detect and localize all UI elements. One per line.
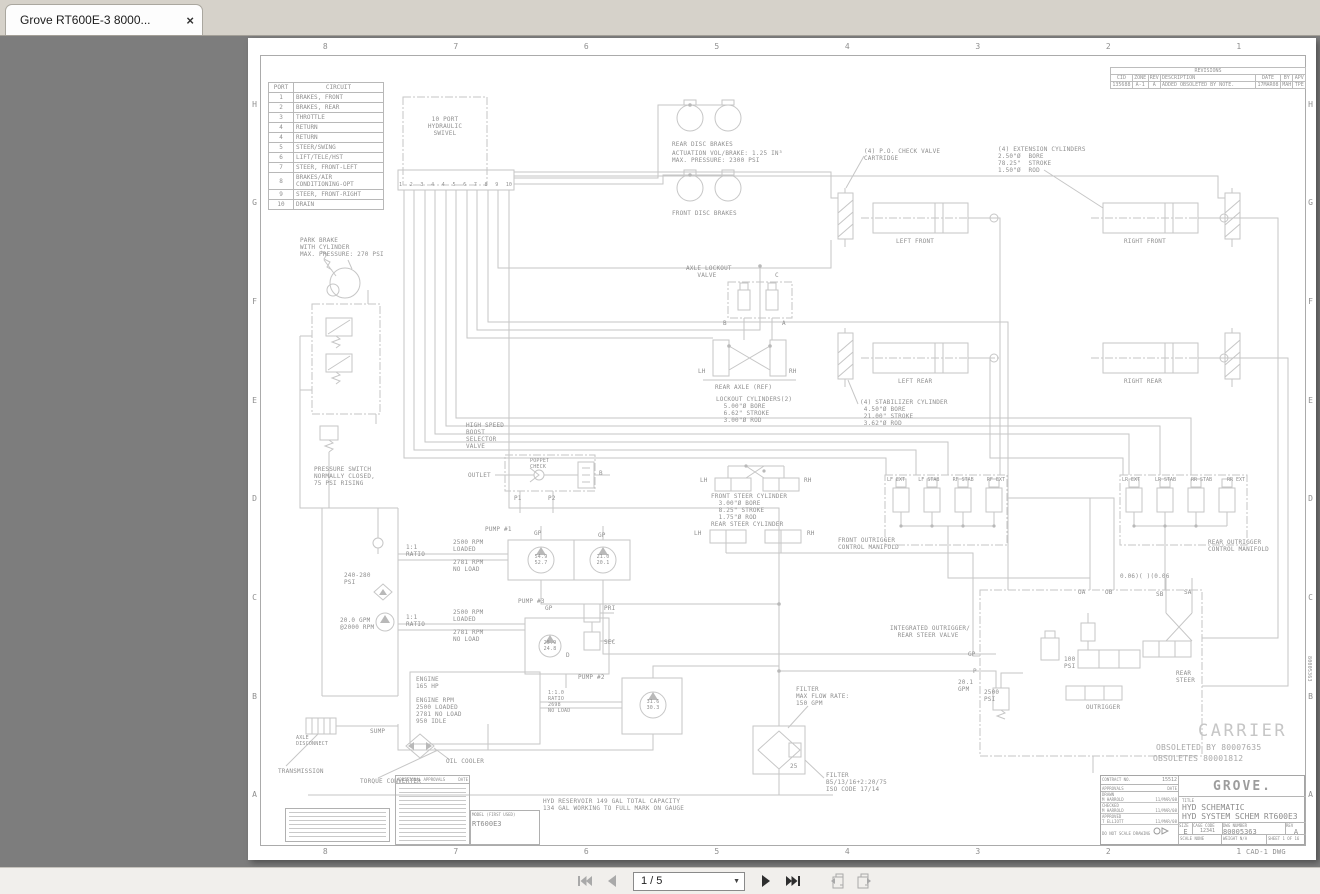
port-cell: 5: [269, 143, 294, 153]
zone-number: 1: [1236, 847, 1241, 857]
zone-letter: F: [252, 297, 257, 306]
carrier-text: CARRIER: [1198, 722, 1287, 740]
gp-label-3: GP: [545, 605, 553, 612]
circuit-cell: BRAKES/AIR CONDITIONING-OPT: [294, 173, 384, 190]
last-page-icon: [785, 874, 801, 888]
tab-title: Grove RT600E-3 8000...: [20, 13, 178, 27]
port-table-row: 7 STEER, FRONT-LEFT: [269, 163, 384, 173]
approval-row: APPROVED T ELLIOTT 11/MAR/08: [1101, 814, 1179, 825]
zone-numbers-top: 87654321: [260, 42, 1304, 52]
right-front-label: RIGHT FRONT: [1124, 238, 1166, 245]
pump1-label: PUMP #1: [485, 526, 512, 533]
valve-label: LR EXT: [1122, 477, 1140, 483]
zone-letter: G: [1308, 198, 1313, 207]
previous-view-icon: [829, 873, 845, 889]
left-front-label: LEFT FRONT: [896, 238, 934, 245]
gp-label-1: GP: [534, 530, 542, 537]
date-label: DATE: [458, 777, 468, 782]
port-table-row: 4 RETURN: [269, 133, 384, 143]
zone-numbers-bottom: 87654321: [260, 847, 1304, 857]
outlet-label: OUTLET: [468, 472, 491, 479]
port-oa-label: OA: [1078, 589, 1086, 596]
tolerance-notes-block: [285, 808, 390, 842]
swivel-port-number: 5: [452, 182, 455, 188]
zone-letters-right: HGFEDCBA: [1306, 55, 1315, 844]
rear-disc-brakes-label: REAR DISC BRAKES: [672, 141, 733, 148]
extension-cylinders-note: (4) EXTENSION CYLINDERS 2.50"Ø BORE 78.2…: [998, 146, 1086, 174]
swivel-port-number: 4: [442, 182, 445, 188]
circuit-cell: STEER, FRONT-RIGHT: [294, 190, 384, 200]
port-table-row: 10 DRAIN: [269, 200, 384, 210]
zone-letter: E: [252, 396, 257, 405]
revisions-table: REVISIONS CIDZONEREVDESCRIPTIONDATEBYAPV…: [1110, 67, 1306, 89]
left-rear-label: LEFT REAR: [898, 378, 932, 385]
approval-date: 11/MAR/08: [1155, 819, 1177, 824]
third-angle-projection-icon: [1153, 827, 1169, 835]
lh-rear-steer-label: LH: [694, 530, 702, 537]
dwg-number-value: 80005363: [1223, 828, 1285, 835]
zone-letter: F: [1308, 297, 1313, 306]
port-header: PORT: [269, 83, 294, 93]
contract-label: CONTRACT NO.: [1101, 776, 1132, 783]
port-cell: 9: [269, 190, 294, 200]
port-table-row: 9 STEER, FRONT-RIGHT: [269, 190, 384, 200]
approval-name: T ELLIOTT: [1102, 819, 1124, 824]
rpm-noload-1: 2781 RPM NO LOAD: [453, 559, 484, 573]
rpm-loaded-1: 2500 RPM LOADED: [453, 539, 484, 553]
orifice-note: 0.06)( )(0.06: [1120, 573, 1170, 580]
swivel-port-number: 3: [420, 182, 423, 188]
port-c-label: C: [775, 272, 779, 279]
rpm-noload-2: 2781 RPM NO LOAD: [453, 629, 484, 643]
revision-cell: TPE: [1293, 82, 1306, 89]
psi-100-label: 100 PSI: [1064, 656, 1075, 670]
revisions-title: REVISIONS: [1111, 68, 1306, 75]
right-rear-label: RIGHT REAR: [1124, 378, 1162, 385]
zone-letter: C: [1308, 593, 1313, 602]
port-p1-label: P1: [514, 495, 522, 502]
next-page-button[interactable]: [756, 871, 776, 891]
first-page-icon: [577, 874, 593, 888]
drawing-title-2: HYD SYSTEM SCHEM RT600E3: [1182, 812, 1303, 821]
swivel-port-number: 2: [410, 182, 413, 188]
check-valve-note: (4) P.O. CHECK VALVE CARTRIDGE: [864, 148, 940, 162]
revision-header: APV: [1293, 75, 1306, 82]
circuit-cell: BRAKES, FRONT: [294, 93, 384, 103]
transmission-label: TRANSMISSION: [278, 768, 324, 775]
filter-bypass-label: 25: [790, 763, 798, 770]
model-value: RT600E3: [471, 818, 539, 830]
zone-letter: H: [1308, 100, 1313, 109]
dwg-number-vertical: 80005363: [1306, 656, 1312, 682]
circuit-cell: STEER/SWING: [294, 143, 384, 153]
pump1-gauge-b: 21.0 20.1: [597, 554, 610, 566]
approvals-label: APPROVALS: [1102, 786, 1124, 790]
oil-cooler-label: OIL COOLER: [446, 758, 484, 765]
gpm-20-label: 20.0 GPM @2000 RPM: [340, 617, 374, 631]
zone-number: 5: [714, 847, 719, 857]
port-cell: 10: [269, 200, 294, 210]
sheet-label: SHEET: [1268, 836, 1280, 841]
port-table-row: 2 BRAKES, REAR: [269, 103, 384, 113]
document-tab[interactable]: Grove RT600E-3 8000... ×: [5, 4, 203, 35]
zone-letter: A: [252, 790, 257, 799]
valve-label: RR EXT: [1227, 477, 1245, 483]
ratio-label-2: 1:1 RATIO: [406, 614, 425, 628]
revision-cell: A-1: [1132, 82, 1148, 89]
rh-axle-label: RH: [789, 368, 797, 375]
obsoleted-by-note: OBSOLETED BY 80007635: [1156, 743, 1261, 753]
ratio-label-1: 1:1 RATIO: [406, 544, 425, 558]
port-circuit-table: PORT CIRCUIT 1 BRAKES, FRONT 2 BRAKES, R…: [268, 82, 384, 210]
dropdown-caret-icon: ▼: [733, 878, 740, 885]
zone-number: 7: [453, 847, 458, 857]
zone-number: 4: [845, 42, 850, 52]
valve-label: LR STAB: [1155, 477, 1176, 483]
last-page-button[interactable]: [783, 871, 803, 891]
port-a-lockout-label: A: [782, 320, 786, 327]
zone-letter: D: [252, 494, 257, 503]
swivel-label: 10 PORT HYDRAULIC SWIVEL: [428, 116, 462, 137]
scale-value: NONE: [1194, 836, 1204, 841]
approval-name: M HARROLD: [1102, 797, 1124, 802]
gp-label-4: GP: [968, 651, 976, 658]
axle-disconnect-label: AXLE DISCONNECT: [296, 735, 328, 747]
front-manifold-label: FRONT OUTRIGGER CONTROL MANIFOLD: [838, 537, 899, 551]
port-p-label: P: [973, 668, 977, 675]
revision-cell: 135688: [1111, 82, 1133, 89]
front-manifold-valve-labels: LF EXTLF STABRF STABRF EXT: [887, 477, 1005, 483]
scale-label: SCALE: [1180, 836, 1192, 841]
revision-cell: ADDED OBSOLETED BY NOTE.: [1160, 82, 1255, 89]
psi-240-280-label: 240-280 PSI: [344, 572, 371, 586]
next-view-icon: [856, 873, 872, 889]
lockout-cylinders-note: LOCKOUT CYLINDERS(2) 5.00"Ø BORE 6.62" S…: [716, 396, 792, 424]
approval-name: M HARROLD: [1102, 808, 1124, 813]
revision-cell: MAH: [1280, 82, 1292, 89]
previous-page-icon: [606, 874, 618, 888]
date-label: DATE: [1167, 786, 1177, 790]
sec-label: SEC: [604, 639, 615, 646]
approval-date: 11/MAR/08: [1155, 808, 1177, 813]
swivel-port-number: 9: [495, 182, 498, 188]
port-cell: 1: [269, 93, 294, 103]
zone-number: 4: [845, 847, 850, 857]
zone-number: 6: [584, 42, 589, 52]
weight-value: N/A: [1240, 836, 1247, 841]
revision-header: REV: [1148, 75, 1160, 82]
filter-note: FILTER MAX FLOW RATE: 150 GPM: [796, 686, 849, 707]
tab-bar: Grove RT600E-3 8000... ×: [0, 0, 1320, 36]
zone-letter: A: [1308, 790, 1313, 799]
zone-number: 3: [975, 847, 980, 857]
port-table-row: 3 THROTTLE: [269, 113, 384, 123]
rear-steer-cyl-label: REAR STEER CYLINDER: [711, 521, 783, 528]
statusbar: 1 / 5 ▼: [0, 867, 1320, 894]
circuit-cell: BRAKES, REAR: [294, 103, 384, 113]
ecn-number: 15512: [1161, 776, 1178, 784]
circuit-cell: STEER, FRONT-LEFT: [294, 163, 384, 173]
revision-header: DESCRIPTION: [1160, 75, 1255, 82]
zone-number: 2: [1106, 42, 1111, 52]
pump2-label: PUMP #2: [578, 674, 605, 681]
zone-letter: E: [1308, 396, 1313, 405]
port-cell: 4: [269, 133, 294, 143]
next-page-icon: [760, 874, 772, 888]
page-navigation: 1 / 5 ▼: [575, 868, 874, 894]
valve-label: RR STAB: [1191, 477, 1212, 483]
swivel-port-numbers: 123445678910: [399, 182, 512, 188]
swivel-port-number: 6: [463, 182, 466, 188]
pdf-page: 87654321 87654321 HGFEDCBA HGFEDCBA: [248, 38, 1316, 860]
port-table-row: 6 LIFT/TELE/HST: [269, 153, 384, 163]
pressure-switch-note: PRESSURE SWITCH NORMALLY CLOSED, 75 PSI …: [314, 466, 375, 487]
rh-rear-steer-label: RH: [807, 530, 815, 537]
pump3-label: PUMP #3: [518, 598, 545, 605]
model-block: MODEL (FIRST USED) RT600E3: [470, 810, 540, 845]
tab-close-icon[interactable]: ×: [178, 13, 194, 28]
zone-letter: H: [252, 100, 257, 109]
port-table-row: 1 BRAKES, FRONT: [269, 93, 384, 103]
outrigger-label: OUTRIGGER: [1086, 704, 1120, 711]
gp-label-2: GP: [598, 532, 606, 539]
valve-label: LF EXT: [887, 477, 905, 483]
boost-valve-label: HIGH SPEED BOOST SELECTOR VALVE: [466, 422, 504, 450]
front-disc-brakes-label: FRONT DISC BRAKES: [672, 210, 737, 217]
swivel-port-number: 10: [506, 182, 512, 188]
port-cell: 3: [269, 113, 294, 123]
sheet-value: 1 OF 16: [1282, 836, 1299, 841]
port-cell: 7: [269, 163, 294, 173]
pump3-gauge: 25.9 24.8: [544, 640, 557, 652]
pri-label: PRI: [604, 605, 615, 612]
pump2-gauge: 31.6 30.3: [647, 699, 660, 711]
circuit-cell: RETURN: [294, 123, 384, 133]
cage-code-value: 12341: [1193, 828, 1222, 834]
zone-letter: C: [252, 593, 257, 602]
drawing-border: [260, 55, 1306, 846]
zone-letter: G: [252, 198, 257, 207]
do-not-scale-label: DO NOT SCALE DRAWING: [1102, 831, 1150, 836]
weight-label: WEIGHT: [1223, 836, 1237, 841]
valve-label: RF EXT: [987, 477, 1005, 483]
port-ob-label: OB: [1105, 589, 1113, 596]
port-b-boost-label: B: [599, 470, 603, 477]
zone-letter: D: [1308, 494, 1313, 503]
valve-label: RF STAB: [953, 477, 974, 483]
page-number-combobox[interactable]: 1 / 5 ▼: [633, 872, 745, 891]
poppet-check-label: POPPET CHECK: [530, 458, 549, 470]
front-steer-note: FRONT STEER CYLINDER 3.00"Ø BORE 8.25" S…: [711, 493, 787, 521]
revision-header: CID: [1111, 75, 1133, 82]
rear-manifold-label: REAR OUTRIGGER CONTROL MANIFOLD: [1208, 539, 1269, 553]
port-sa-label: SA: [1184, 589, 1192, 596]
next-view-button[interactable]: [854, 871, 874, 891]
revision-header: DATE: [1255, 75, 1280, 82]
port-cell: 2: [269, 103, 294, 113]
filter-spec-note: FILTER B5/13/16+2:20/75 ISO CODE 17/14: [826, 772, 887, 793]
revision-cell: 17MAR08: [1255, 82, 1280, 89]
swivel-port-number: 1: [399, 182, 402, 188]
zone-number: 8: [323, 847, 328, 857]
swivel-port-number: 4: [431, 182, 434, 188]
gpm-201-label: 20.1 GPM: [958, 679, 973, 693]
port-sb-label: SB: [1156, 591, 1164, 598]
valve-label: LF STAB: [918, 477, 939, 483]
zone-number: 3: [975, 42, 980, 52]
port-d-label: D: [566, 652, 570, 659]
zone-letters-left: HGFEDCBA: [250, 55, 259, 844]
psi-2500-label: 2500 PSI: [984, 689, 999, 703]
sump-label: SUMP: [370, 728, 385, 735]
port-p2-label: P2: [548, 495, 556, 502]
revision-header: ZONE: [1132, 75, 1148, 82]
circuit-header: CIRCUIT: [294, 83, 384, 93]
additional-approvals-label: ADDITIONAL APPROVALS: [397, 777, 445, 782]
zone-number: 8: [323, 42, 328, 52]
port-table-row: 4 RETURN: [269, 123, 384, 133]
axle-lockout-label: AXLE LOCKOUT VALVE: [686, 265, 732, 279]
rear-manifold-valve-labels: LR EXTLR STABRR STABRR EXT: [1122, 477, 1245, 483]
rpm-loaded-2: 2500 RPM LOADED: [453, 609, 484, 623]
model-label: MODEL (FIRST USED): [471, 811, 539, 818]
port-cell: 6: [269, 153, 294, 163]
port-cell: 4: [269, 123, 294, 133]
approval-row: CHECKED M HARROLD 11/MAR/08: [1101, 803, 1179, 814]
zone-number: 1: [1236, 42, 1241, 52]
additional-approvals-block: ADDITIONAL APPROVALS DATE: [395, 775, 470, 845]
previous-view-button[interactable]: [827, 871, 847, 891]
size-value: E: [1179, 828, 1192, 835]
rear-steer-valve-label: REAR STEER: [1176, 670, 1195, 684]
revision-header: BY: [1280, 75, 1292, 82]
cad-dwg-label: CAD-1 DWG: [1246, 848, 1286, 856]
actuation-note: ACTUATION VOL/BRAKE: 1.25 IN³ MAX. PRESS…: [672, 150, 783, 164]
zone-number: 5: [714, 42, 719, 52]
port-b-lockout-label: B: [723, 320, 727, 327]
lh-front-steer-label: LH: [700, 477, 708, 484]
circuit-cell: LIFT/TELE/HST: [294, 153, 384, 163]
zone-number: 6: [584, 847, 589, 857]
circuit-cell: DRAIN: [294, 200, 384, 210]
reservoir-note: HYD RESERVOIR 149 GAL TOTAL CAPACITY 134…: [543, 798, 684, 812]
park-brake-note: PARK BRAKE WITH CYLINDER MAX. PRESSURE: …: [300, 237, 384, 258]
rh-front-steer-label: RH: [804, 477, 812, 484]
stabilizer-cylinder-note: (4) STABILIZER CYLINDER 4.50"Ø BORE 21.0…: [860, 399, 948, 427]
ratio-label-3: 1:1.0 RATIO 2698 NO LOAD: [548, 690, 570, 714]
circuit-cell: RETURN: [294, 133, 384, 143]
pump1-gauge-a: 54.9 52.7: [535, 554, 548, 566]
grove-logo: GROVE.: [1213, 779, 1272, 794]
approval-date: 11/MAR/08: [1155, 797, 1177, 802]
page-number-value: 1 / 5: [641, 875, 733, 887]
previous-page-button[interactable]: [602, 871, 622, 891]
zone-letter: B: [252, 692, 257, 701]
zone-number: 7: [453, 42, 458, 52]
engine-note: ENGINE 165 HP ENGINE RPM 2500 LOADED 278…: [416, 676, 462, 725]
lh-axle-label: LH: [698, 368, 706, 375]
port-cell: 8: [269, 173, 294, 190]
zone-letter: B: [1308, 692, 1313, 701]
rear-axle-label: REAR AXLE (REF): [715, 384, 772, 391]
swivel-port-number: 8: [485, 182, 488, 188]
swivel-port-number: 7: [474, 182, 477, 188]
approval-row: DRAWN M HARROLD 11/MAR/08: [1101, 792, 1179, 803]
revision-cell: A: [1148, 82, 1160, 89]
port-table-row: 5 STEER/SWING: [269, 143, 384, 153]
port-table-row: 8 BRAKES/AIR CONDITIONING-OPT: [269, 173, 384, 190]
drawing-title-1: HYD SCHEMATIC: [1182, 803, 1303, 812]
rev-value: A: [1286, 828, 1306, 835]
obsoletes-note: OBSOLETES 80001812: [1153, 754, 1243, 764]
first-page-button[interactable]: [575, 871, 595, 891]
circuit-cell: THROTTLE: [294, 113, 384, 123]
integrated-valve-label: INTEGRATED OUTRIGGER/ REAR STEER VALVE: [890, 625, 970, 639]
title-block: CONTRACT NO. 15512 APPROVALS DATE DRAWN …: [1100, 775, 1305, 845]
zone-number: 2: [1106, 847, 1111, 857]
